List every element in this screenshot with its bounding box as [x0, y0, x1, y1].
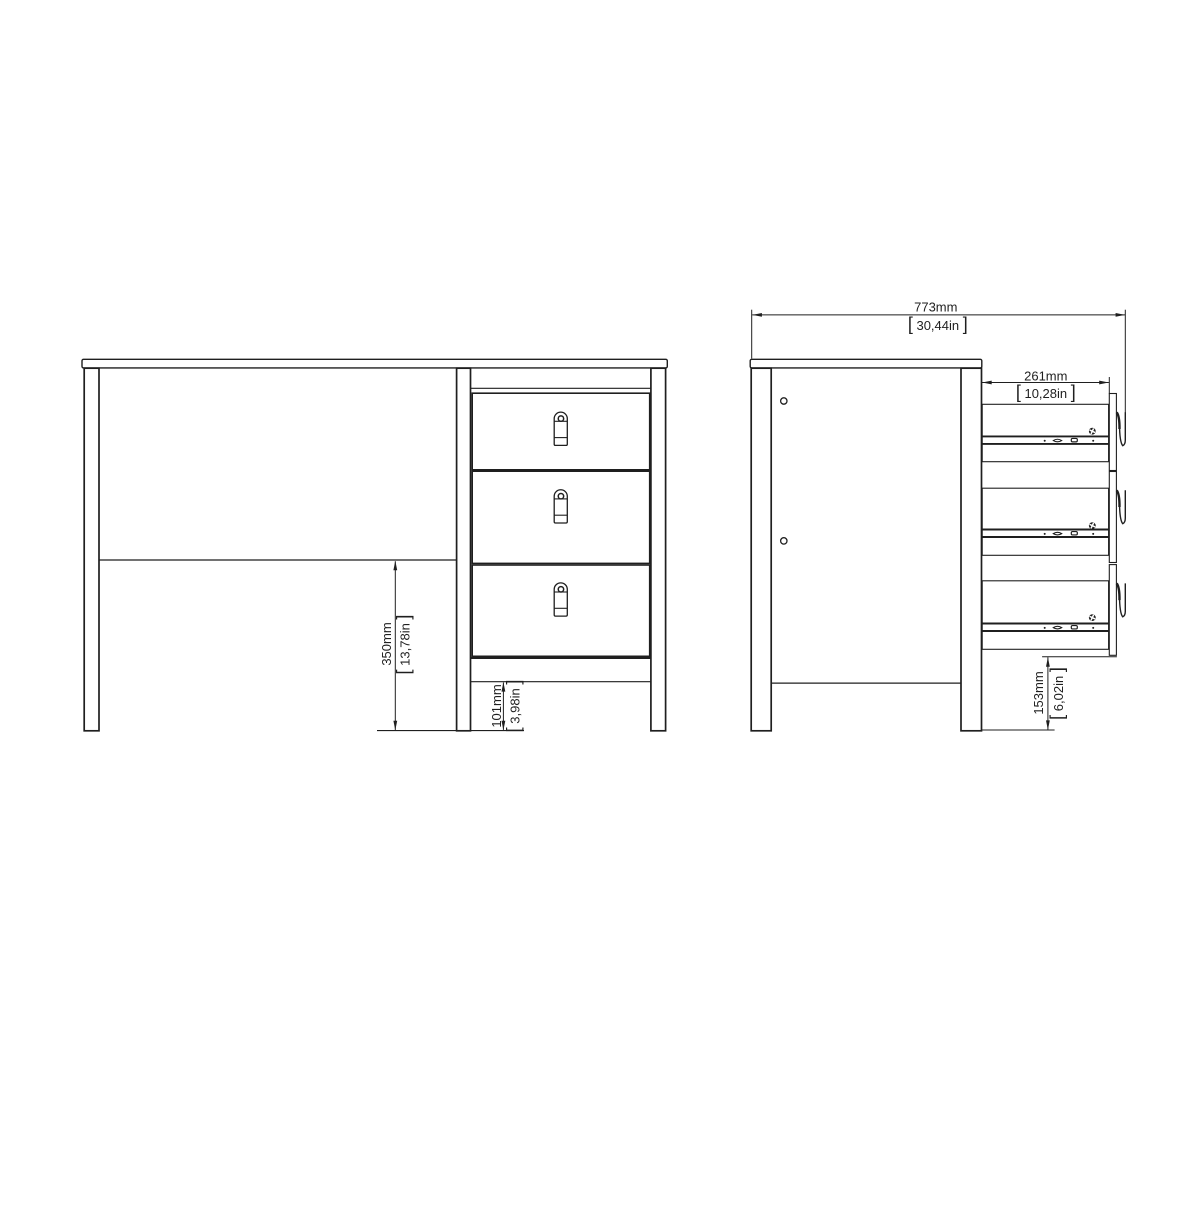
svg-text:153mm: 153mm — [1031, 671, 1046, 714]
svg-text:350mm: 350mm — [379, 622, 394, 665]
svg-text:261mm: 261mm — [1024, 368, 1067, 383]
svg-text:101mm: 101mm — [489, 684, 504, 727]
svg-text:773mm: 773mm — [914, 300, 957, 315]
